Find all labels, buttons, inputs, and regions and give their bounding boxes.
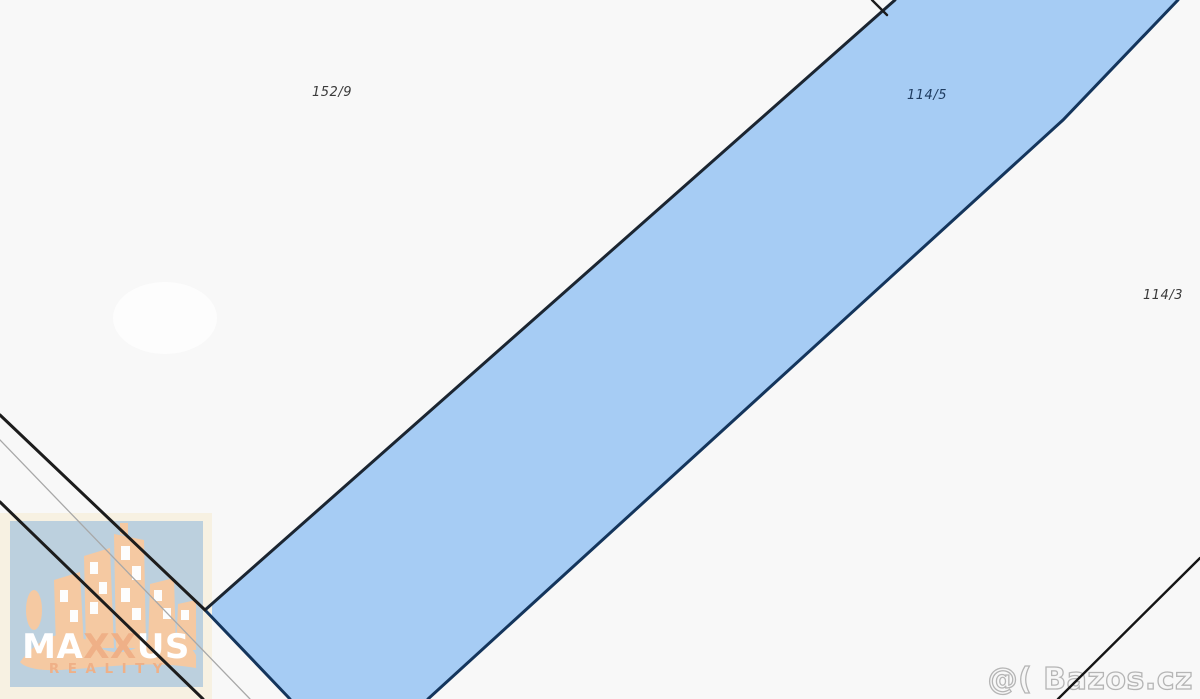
cadastral-map-screenshot: MAXXUS REALITY @( Bazos.cz 152/9 114/5 1 [0, 0, 1200, 699]
agency-logo-subtitle: REALITY [49, 661, 171, 677]
parcel-label-152-9: 152/9 [312, 85, 352, 100]
parcel-label-114-3: 114/3 [1143, 288, 1183, 303]
logo-tree-icon [26, 590, 42, 630]
faint-terrain-mark [113, 282, 217, 354]
parcel-label-114-5: 114/5 [907, 88, 947, 103]
map-canvas: MAXXUS REALITY @( Bazos.cz 152/9 114/5 1 [0, 0, 1200, 699]
